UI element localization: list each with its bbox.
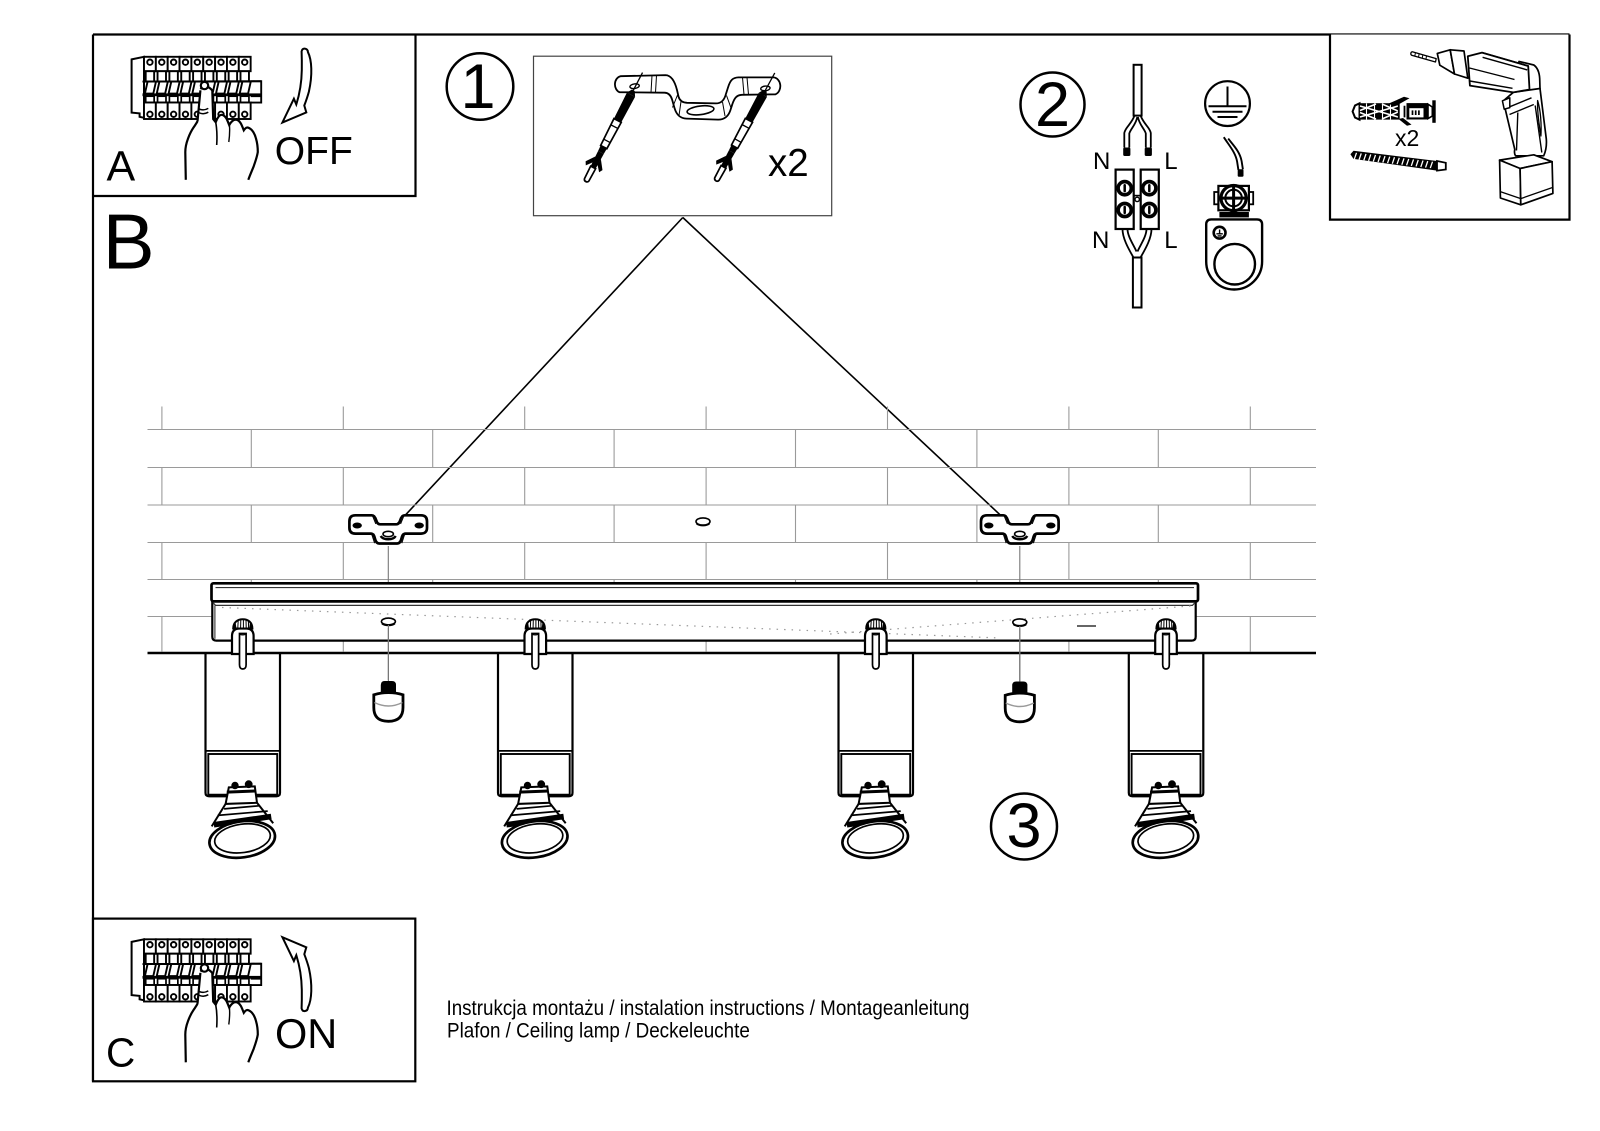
svg-text:x2: x2 bbox=[768, 142, 809, 185]
svg-text:x2: x2 bbox=[1395, 125, 1419, 151]
svg-text:N: N bbox=[1092, 227, 1109, 254]
svg-text:Instrukcja montażu / instalati: Instrukcja montażu / instalation instruc… bbox=[447, 997, 970, 1020]
svg-text:L: L bbox=[1164, 148, 1177, 175]
svg-text:Plafon / Ceiling lamp / Deckel: Plafon / Ceiling lamp / Deckeleuchte bbox=[447, 1020, 750, 1043]
svg-text:L: L bbox=[1164, 227, 1177, 254]
svg-text:3: 3 bbox=[1006, 791, 1041, 861]
svg-text:ON: ON bbox=[275, 1010, 337, 1057]
svg-text:N: N bbox=[1093, 148, 1110, 175]
svg-text:OFF: OFF bbox=[275, 130, 353, 173]
svg-text:B: B bbox=[103, 197, 155, 285]
svg-text:A: A bbox=[107, 142, 136, 190]
svg-text:2: 2 bbox=[1035, 70, 1070, 140]
svg-text:C: C bbox=[106, 1030, 135, 1076]
svg-text:1: 1 bbox=[460, 52, 495, 122]
